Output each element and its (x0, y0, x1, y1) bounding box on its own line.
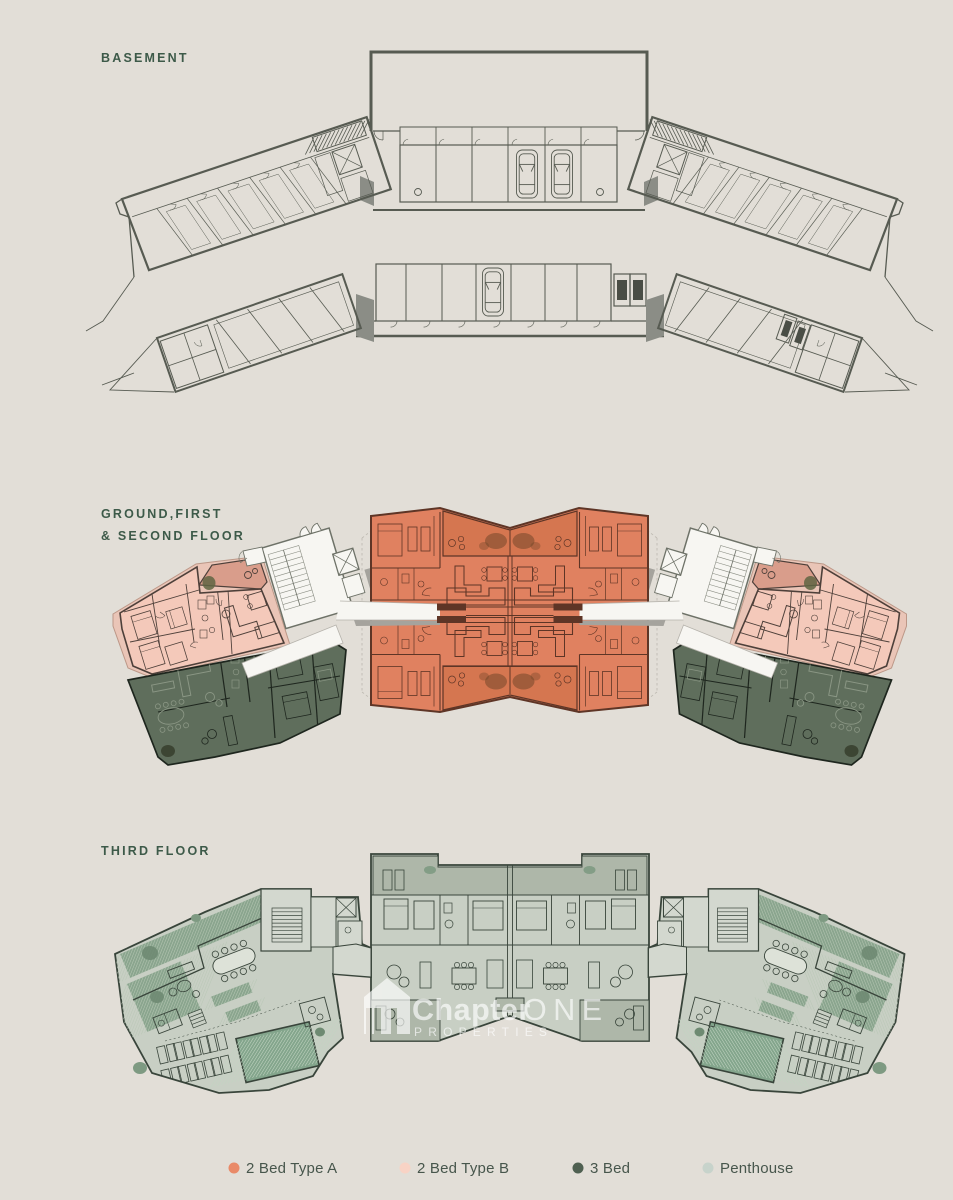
svg-text:& SECOND FLOOR: & SECOND FLOOR (101, 529, 245, 543)
svg-text:PROPERTIES: PROPERTIES (414, 1025, 553, 1039)
svg-text:3 Bed: 3 Bed (590, 1160, 630, 1177)
svg-text:Chapter: Chapter (412, 993, 531, 1027)
svg-text:Penthouse: Penthouse (720, 1160, 794, 1177)
svg-text:ONE: ONE (523, 993, 609, 1027)
svg-text:THIRD FLOOR: THIRD FLOOR (101, 844, 211, 858)
svg-text:2 Bed Type A: 2 Bed Type A (246, 1160, 337, 1177)
svg-text:BASEMENT: BASEMENT (101, 51, 189, 65)
svg-text:GROUND,FIRST: GROUND,FIRST (101, 507, 223, 521)
svg-text:2 Bed Type B: 2 Bed Type B (417, 1160, 509, 1177)
